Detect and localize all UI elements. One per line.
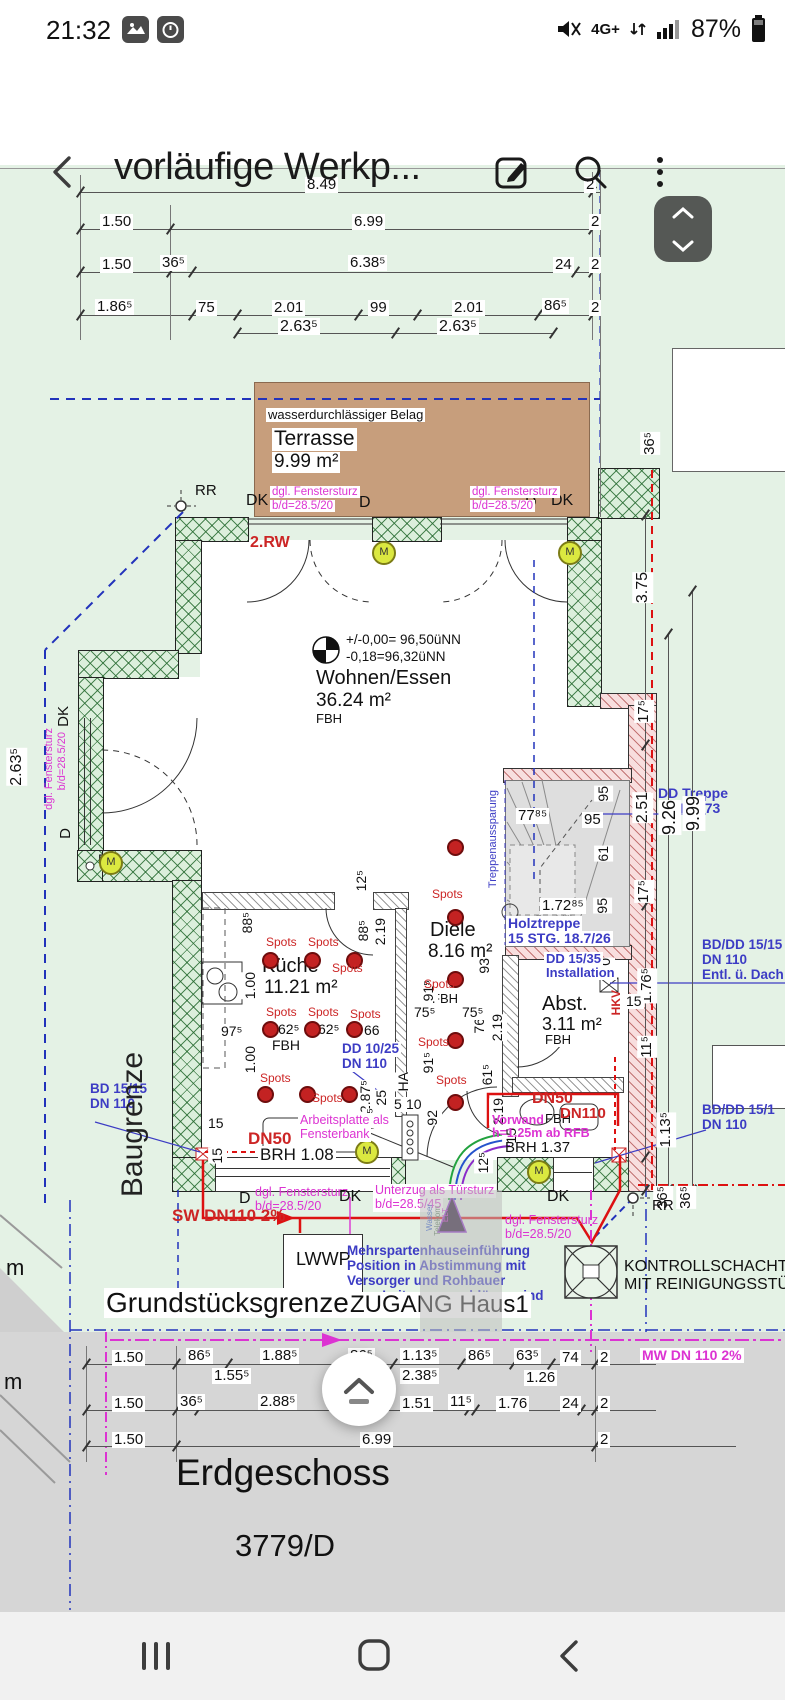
pipe-note: DD 10/25 [340, 1042, 401, 1057]
dim-label: 75⁵ [412, 1005, 437, 1020]
m-marker: M [558, 541, 582, 565]
lwwp-label: LWWP [294, 1250, 353, 1269]
lintel-note: b/d=28.5/20 [55, 732, 71, 790]
dim-label: 6.99 [360, 1432, 393, 1448]
spots-label: Spots [330, 962, 365, 975]
room-area: 36.24 m² [314, 691, 393, 712]
ceiling-spot [304, 952, 321, 969]
dim-label: 3.75 [632, 572, 653, 603]
m-marker: M [355, 1140, 379, 1164]
dim-label: 12⁵ [474, 1152, 493, 1173]
dim-label: 5 [392, 1097, 404, 1112]
dim-label: 1.55⁵ [212, 1368, 251, 1384]
dim-label: 97⁵ [219, 1024, 244, 1039]
lintel-note: dgl. Fenstersturz [270, 486, 360, 498]
timer-notification-icon [157, 16, 184, 43]
dim-label: 2.51 [632, 792, 653, 823]
recents-button[interactable] [136, 1636, 180, 1676]
dim-label: 36⁵ [160, 255, 187, 271]
dim-label: 2.38⁵ [400, 1368, 439, 1384]
level-label: +/-0,00= 96,50üNN [344, 633, 463, 648]
battery-icon [750, 14, 767, 44]
dim-label: 92 [423, 1110, 442, 1126]
dim-label: 36⁵ [640, 432, 660, 455]
dim-label: 1.86⁵ [95, 299, 134, 315]
dim-label: 66 [362, 1023, 382, 1038]
dim-label: 75⁵ [460, 1005, 485, 1020]
lintel-note: dgl. Fenstersturz [470, 486, 560, 498]
dim-label: 2 [598, 1396, 610, 1412]
spots-label: Spots [306, 1006, 341, 1019]
home-button[interactable] [352, 1636, 396, 1676]
dim-label: 11⁵ [637, 1036, 657, 1058]
stair-note: Holztreppe [506, 916, 582, 931]
pipe-note: Installation [544, 966, 617, 980]
battery-percent: 87% [691, 15, 741, 44]
ceiling-spot [447, 839, 464, 856]
dim-label: 91⁵ [419, 1052, 438, 1073]
search-button[interactable] [568, 150, 612, 194]
dim-label: 1.50 [112, 1396, 145, 1412]
dim-label: 36⁵ [676, 1186, 696, 1209]
pipe-note: Entl. ü. Dach [700, 968, 785, 983]
entry-path [420, 1190, 502, 1332]
dim-label: 2.19 [371, 918, 390, 945]
lintel-note: b/d=28.5/20 [253, 1200, 323, 1214]
dim-label: 6.99 [352, 214, 385, 230]
dim-label: 2.63⁵ [437, 318, 479, 335]
app-bar: vorläufige Werkp... [0, 62, 785, 165]
dim-label: 86⁵ [186, 1348, 213, 1364]
dim-label: 1.13⁵ [400, 1348, 439, 1364]
dim-line [80, 272, 600, 273]
lintel-note: dgl. Fenstersturz [253, 1186, 350, 1200]
dim-label: 2.01 [272, 300, 305, 316]
window-type-label: DK [54, 706, 74, 727]
dim-label: 15 [206, 1116, 226, 1131]
worktop-note: Fensterbank [298, 1128, 371, 1142]
dim-label: 2 [598, 1350, 610, 1366]
chevron-down-icon[interactable] [670, 238, 696, 254]
baugrenze-label: Baugrenze [115, 1052, 151, 1197]
dim-label: 88⁵ [238, 912, 257, 933]
dim-label: 93 [475, 958, 494, 974]
dim-line [80, 315, 600, 316]
signal-bars-icon [656, 17, 682, 41]
ceiling-spot [257, 1086, 274, 1103]
window-type-label: D [237, 1190, 253, 1207]
document-title: vorläufige Werkp... [114, 146, 421, 189]
dim-label: 95 [594, 786, 613, 802]
spots-label: Spots [258, 1072, 293, 1085]
dim-label: 2.01 [452, 300, 485, 316]
dim-label: 1.50 [100, 257, 133, 273]
dim-label: 2.63⁵ [6, 748, 27, 786]
spots-label: Spots [434, 1074, 469, 1087]
dim-label: 24 [560, 1396, 581, 1412]
dim-label: 1.26 [524, 1370, 557, 1386]
status-bar: 21:32 4G+ 87% [0, 0, 785, 62]
dim-label: 2 [598, 1432, 610, 1448]
dim-label: 1.50 [112, 1350, 145, 1366]
dim-label: 74 [560, 1350, 581, 1366]
dim-label: 11⁵ [448, 1394, 474, 1410]
kontrollschacht-label: MIT REINIGUNGSSTÜCK [622, 1276, 785, 1293]
meter-label: m [2, 1370, 24, 1394]
ceiling-spot [304, 1021, 321, 1038]
ceiling-spot [346, 1021, 363, 1038]
ha-label: HA [394, 1072, 413, 1091]
pipe-note: BD/DD 15/15 [700, 938, 784, 953]
dim-label: 76 [470, 1018, 489, 1034]
dim-label: 1.00 [241, 972, 260, 999]
dim-label: 86⁵ [466, 1348, 493, 1364]
ceiling-spot [447, 909, 464, 926]
dim-line [80, 229, 600, 230]
ceiling-spot [262, 952, 279, 969]
mute-icon [554, 15, 582, 43]
gallery-notification-icon [122, 16, 149, 43]
dim-label: 24 [553, 257, 574, 273]
smoke-detector-label: 2.RW [248, 534, 292, 551]
downpipe-label: RR [193, 483, 219, 499]
dim-label: 1.76 [496, 1396, 529, 1412]
window-type-label: DK [545, 1188, 571, 1205]
room-heating: FBH [270, 1038, 302, 1053]
parcel-number: 3779/D [235, 1528, 335, 1564]
phone-screen: wasserdurchlässiger Belag Terrasse 9.99 … [0, 0, 785, 1700]
lintel-note: dgl. Fenstersturz [503, 1214, 600, 1228]
dim-label: 61⁵ [478, 1064, 497, 1085]
ceiling-spot [447, 1094, 464, 1111]
spots-label: Spots [430, 888, 465, 901]
dim-label: 10 [404, 1097, 424, 1112]
dim-label: 1.50 [100, 214, 133, 230]
floor-title: Erdgeschoss [176, 1452, 390, 1494]
dim-label: 61 [594, 846, 613, 862]
m-marker: M [99, 851, 123, 875]
dim-label: 2 [589, 257, 601, 273]
dim-label: 15 [208, 1148, 227, 1164]
m-marker: M [527, 1160, 551, 1184]
spots-label: Spots [416, 1036, 451, 1049]
dim-label: 9.26 [658, 800, 681, 835]
dim-label: 1.51 [400, 1396, 433, 1412]
ceiling-spot [262, 1021, 279, 1038]
lintel-note: b/d=28.5/20 [270, 500, 335, 512]
dim-label: 62⁵ [276, 1022, 301, 1037]
downpipe-label: RR [650, 1198, 676, 1214]
room-heating: FBH [314, 712, 344, 726]
data-arrows-icon [629, 19, 647, 39]
back-button[interactable] [42, 150, 86, 194]
dim-label: 15 [624, 994, 644, 1009]
spots-label: Spots [422, 978, 457, 991]
spots-label: Spots [348, 1008, 383, 1021]
room-name: Abst. [540, 994, 590, 1016]
dim-label: 2.63⁵ [278, 318, 320, 335]
dim-label: 95 [582, 812, 603, 828]
meter-label: m [4, 1256, 26, 1280]
scroll-to-top-button[interactable] [322, 1352, 396, 1426]
page-scroll-widget[interactable] [654, 196, 712, 262]
pipe-note-red: DN110 [558, 1106, 608, 1122]
dim-label: 77⁸⁵ [516, 808, 549, 824]
dim-label: 1.00 [241, 1046, 260, 1073]
dim-label: 17⁵ [634, 700, 654, 723]
worktop-note: Arbeitsplatte als [298, 1114, 391, 1128]
dim-label: 1.88⁵ [260, 1348, 299, 1364]
dim-label: 36⁵ [178, 1394, 205, 1410]
pipe-note: DD 15/35 [544, 952, 603, 966]
dim-label: 2.88⁵ [258, 1394, 297, 1410]
lintel-note: b/d=28.5/20 [503, 1228, 573, 1242]
window-type-label: DK [337, 1188, 363, 1205]
dim-label: 12⁵ [352, 870, 371, 891]
scroll-top-icon [322, 1352, 396, 1426]
room-heating: FBH [543, 1033, 573, 1047]
stair-note: 15 STG. 18.7/26 [506, 931, 613, 946]
spots-label: Spots [264, 936, 299, 949]
dim-label: 2.19 [488, 1014, 507, 1041]
chevron-up-icon[interactable] [670, 205, 696, 221]
pipe-note-magenta: MW DN 110 2% [640, 1348, 744, 1363]
nav-back-button[interactable] [548, 1636, 592, 1676]
dim-label: 1.13⁵ [656, 1112, 676, 1147]
pipe-note: DN 110 [700, 1118, 749, 1133]
pipe-note: DN 110 [340, 1057, 389, 1072]
m-marker: M [372, 541, 396, 565]
dim-label: 86⁵ [542, 298, 569, 314]
dim-label: 99 [368, 300, 389, 316]
clock: 21:32 [46, 15, 111, 46]
dim-label: 9.99 [682, 796, 705, 831]
level-label: -0,18=96,32üNN [344, 650, 447, 665]
overflow-menu-button[interactable] [638, 150, 682, 194]
sill-height-label: BRH 1.08 [258, 1146, 336, 1164]
spots-label: Spots [310, 1092, 345, 1105]
room-area: 11.21 m² [262, 978, 340, 999]
dim-label: 25 [372, 1090, 391, 1106]
navigation-bar [0, 1612, 785, 1700]
spots-label: Spots [264, 1006, 299, 1019]
dim-label: 6.38⁵ [348, 255, 387, 271]
pipe-note: DN 110 [700, 953, 749, 968]
edit-button[interactable] [490, 150, 534, 194]
dim-label: 75 [196, 300, 217, 316]
spots-label: Spots [306, 936, 341, 949]
hkv-label: HKV [608, 990, 625, 1015]
dim-label: 1.72⁸⁵ [540, 898, 586, 914]
lintel-note: b/d=28.5/20 [470, 500, 535, 512]
dim-label: 1.50 [112, 1432, 145, 1448]
stair-opening-note: Treppenaussparung [486, 790, 502, 888]
property-line-label: Grundstücksgrenze [104, 1288, 351, 1318]
dim-label: 95 [593, 898, 612, 914]
dim-label: 63⁵ [514, 1348, 541, 1364]
dim-label: 2 [589, 300, 601, 316]
network-type-icon: 4G+ [591, 21, 620, 38]
window-type-label: DK [244, 492, 270, 509]
sill-height-label: BRH 1.37 [503, 1140, 572, 1156]
dim-label: 2 [589, 214, 601, 230]
window-type-label: D [56, 828, 76, 839]
pipe-note: BD/DD 15/1 [700, 1103, 777, 1118]
dim-label: 17⁵ [634, 880, 654, 903]
kontrollschacht-label: KONTROLLSCHACHT [622, 1258, 785, 1275]
room-name: Wohnen/Essen [314, 668, 453, 690]
